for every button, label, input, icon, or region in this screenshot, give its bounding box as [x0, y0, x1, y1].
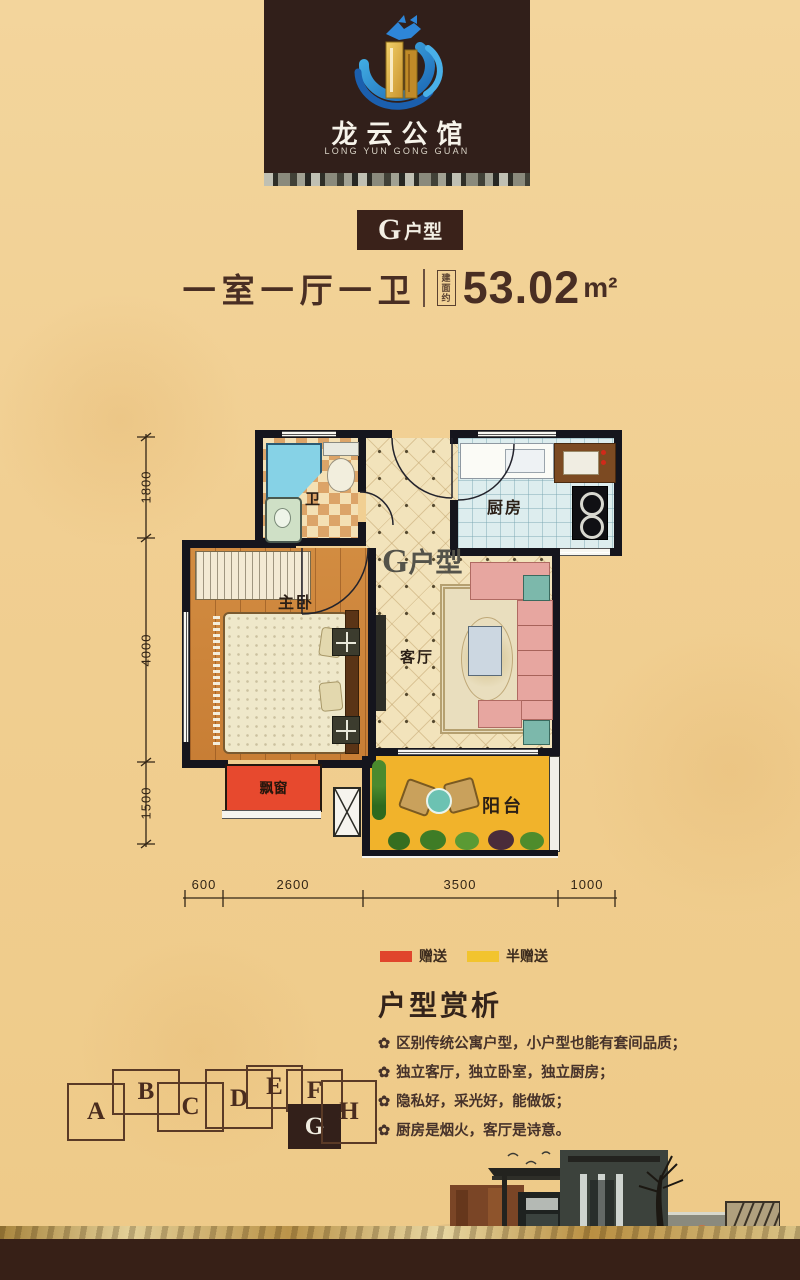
plant	[372, 760, 386, 820]
poster-page: 龙云公馆 LONG YUN GONG GUAN G 户型 一室一厅一卫 建面约 …	[0, 0, 800, 1280]
plant	[388, 832, 410, 850]
side-table	[523, 720, 550, 745]
area-value: 53.02	[463, 262, 581, 314]
area-unit: m²	[583, 272, 617, 304]
analysis-heading: 户型赏析	[378, 984, 502, 1024]
knob	[601, 450, 606, 455]
dragon-building-logo-icon	[328, 12, 466, 114]
dim-horizontal-2600: 2600	[277, 877, 310, 892]
gold-divider-band	[0, 1226, 800, 1239]
tv-cabinet	[376, 615, 386, 711]
plan-unit-label: G户型	[382, 541, 462, 581]
bedroom-label: 主卧	[278, 589, 314, 613]
bathroom-sink	[265, 497, 302, 543]
analysis-point: ✿ 区别传统公寓户型，小户型也能有套间品质；	[378, 1036, 698, 1053]
sofa-pouf	[478, 700, 522, 728]
dim-vertical-4000: 4000	[139, 634, 154, 667]
unit-type-badge: G 户型	[357, 210, 463, 250]
wall	[366, 430, 392, 438]
legend-gift: 赠送	[380, 946, 447, 966]
analysis-points: ✿ 区别传统公寓户型，小户型也能有套间品质； ✿ 独立客厅，独立卧室，独立厨房；…	[378, 1036, 698, 1152]
legend-half-gift: 半赠送	[467, 946, 548, 966]
wall	[255, 430, 263, 546]
wall	[450, 430, 458, 444]
pillow	[319, 681, 344, 712]
toilet	[323, 442, 359, 492]
badge-suffix: 户型	[404, 217, 442, 244]
bay-window-label: 飘窗	[260, 778, 288, 798]
background-watermark	[520, 560, 800, 980]
living-room-label: 客厅	[400, 646, 434, 667]
carved-frieze-decoration	[264, 173, 530, 186]
analysis-point: ✿ 隐私好，采光好，能做饭；	[378, 1094, 698, 1111]
plant	[455, 832, 479, 850]
bedside-rug	[213, 616, 220, 746]
plant	[488, 830, 514, 850]
bedroom-window	[183, 612, 189, 742]
logo-name-en: LONG YUN GONG GUAN	[264, 146, 530, 156]
stove	[572, 486, 608, 540]
architecture-scene	[430, 1140, 780, 1240]
wall-cabinet	[332, 628, 360, 656]
flower-bullet-icon: ✿	[378, 1094, 390, 1111]
balcony-right-wall	[549, 756, 560, 852]
kitchen-window-sill	[560, 548, 610, 556]
window	[282, 431, 336, 437]
window	[478, 431, 556, 437]
wall-cabinet	[332, 716, 360, 744]
bathroom-label: 卫	[305, 488, 320, 509]
plant	[420, 830, 446, 850]
knob	[601, 460, 606, 465]
balcony-table	[426, 788, 452, 814]
half-gift-color-swatch	[467, 951, 499, 962]
building-unit-H: H	[321, 1080, 377, 1144]
side-table	[523, 575, 550, 601]
balcony-sliding-door	[398, 749, 538, 755]
structural-column	[333, 787, 361, 837]
wall	[368, 548, 376, 768]
area-prefix-box: 建面约	[437, 270, 456, 306]
kitchen-label: 厨房	[487, 494, 523, 518]
bay-window-sill	[222, 810, 321, 819]
kitchen-sink-counter	[460, 443, 554, 479]
divider	[423, 269, 425, 307]
dim-horizontal-3500: 3500	[444, 877, 477, 892]
dim-horizontal-1000: 1000	[571, 877, 604, 892]
flower-bullet-icon: ✿	[378, 1123, 390, 1140]
badge-letter: G	[378, 213, 401, 247]
flower-bullet-icon: ✿	[378, 1065, 390, 1082]
wall	[362, 756, 370, 858]
footer-dark-band	[0, 1239, 800, 1280]
logo-block: 龙云公馆 LONG YUN GONG GUAN	[264, 0, 530, 186]
bay-window-zone: 飘窗	[225, 764, 322, 812]
balcony-label: 阳台	[482, 792, 524, 818]
dim-horizontal-600: 600	[192, 877, 217, 892]
dim-vertical-1500: 1500	[139, 787, 154, 820]
plant	[520, 832, 544, 850]
flower-bullet-icon: ✿	[378, 1036, 390, 1053]
dim-vertical-1800: 1800	[139, 471, 154, 504]
legend: 赠送 半赠送	[380, 946, 548, 966]
kitchen-wood-counter	[554, 443, 616, 483]
analysis-point: ✿ 独立客厅，独立卧室，独立厨房；	[378, 1065, 698, 1082]
summary-row: 一室一厅一卫 建面约 53.02 m²	[0, 262, 800, 314]
wall	[362, 850, 558, 858]
sofa-long	[517, 600, 553, 720]
wall	[552, 548, 560, 760]
background-watermark	[30, 880, 370, 1220]
coffee-table	[468, 626, 502, 676]
gift-color-swatch	[380, 951, 412, 962]
wall	[358, 430, 366, 492]
wall	[182, 760, 228, 768]
rooms-count-text: 一室一厅一卫	[183, 264, 417, 312]
analysis-point: ✿ 厨房是烟火，客厅是诗意。	[378, 1123, 698, 1140]
